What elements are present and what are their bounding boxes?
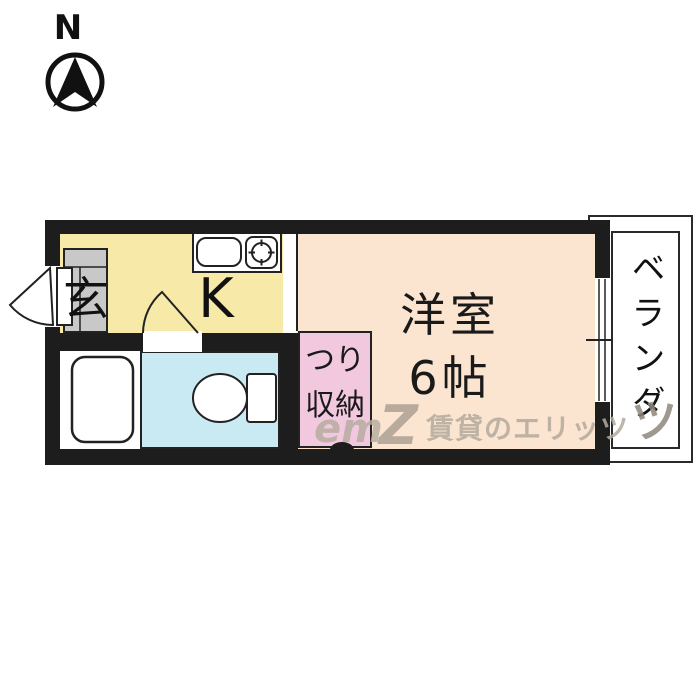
western-room-name: 洋室 <box>375 284 525 347</box>
watermark-logo-script: em <box>314 411 383 447</box>
watermark: em Z 賃貸のエリッツ ツ <box>314 397 677 447</box>
kitchen-room-boundary <box>283 234 297 333</box>
bathroom-floor <box>60 351 140 449</box>
compass-icon <box>48 55 102 109</box>
watermark-extra: ツ <box>631 385 677 451</box>
veranda-window-opening <box>595 278 610 402</box>
watermark-logo-z: Z <box>379 404 418 447</box>
storage-label-line1: つり <box>298 338 372 383</box>
watermark-text: 賃貸のエリッツ <box>426 407 629 447</box>
interior-wall-vertical <box>280 333 298 449</box>
entrance-door-opening <box>45 266 60 327</box>
toilet-area-floor <box>140 351 280 449</box>
compass-north-label: N <box>46 10 90 46</box>
entrance-label: 玄 <box>60 270 112 322</box>
bathroom-door-opening <box>143 331 202 352</box>
floor-plan-page: N ベランダ <box>0 0 700 700</box>
kitchen-label: K <box>194 272 238 324</box>
western-room-label: 洋室 6帖 <box>375 284 525 411</box>
